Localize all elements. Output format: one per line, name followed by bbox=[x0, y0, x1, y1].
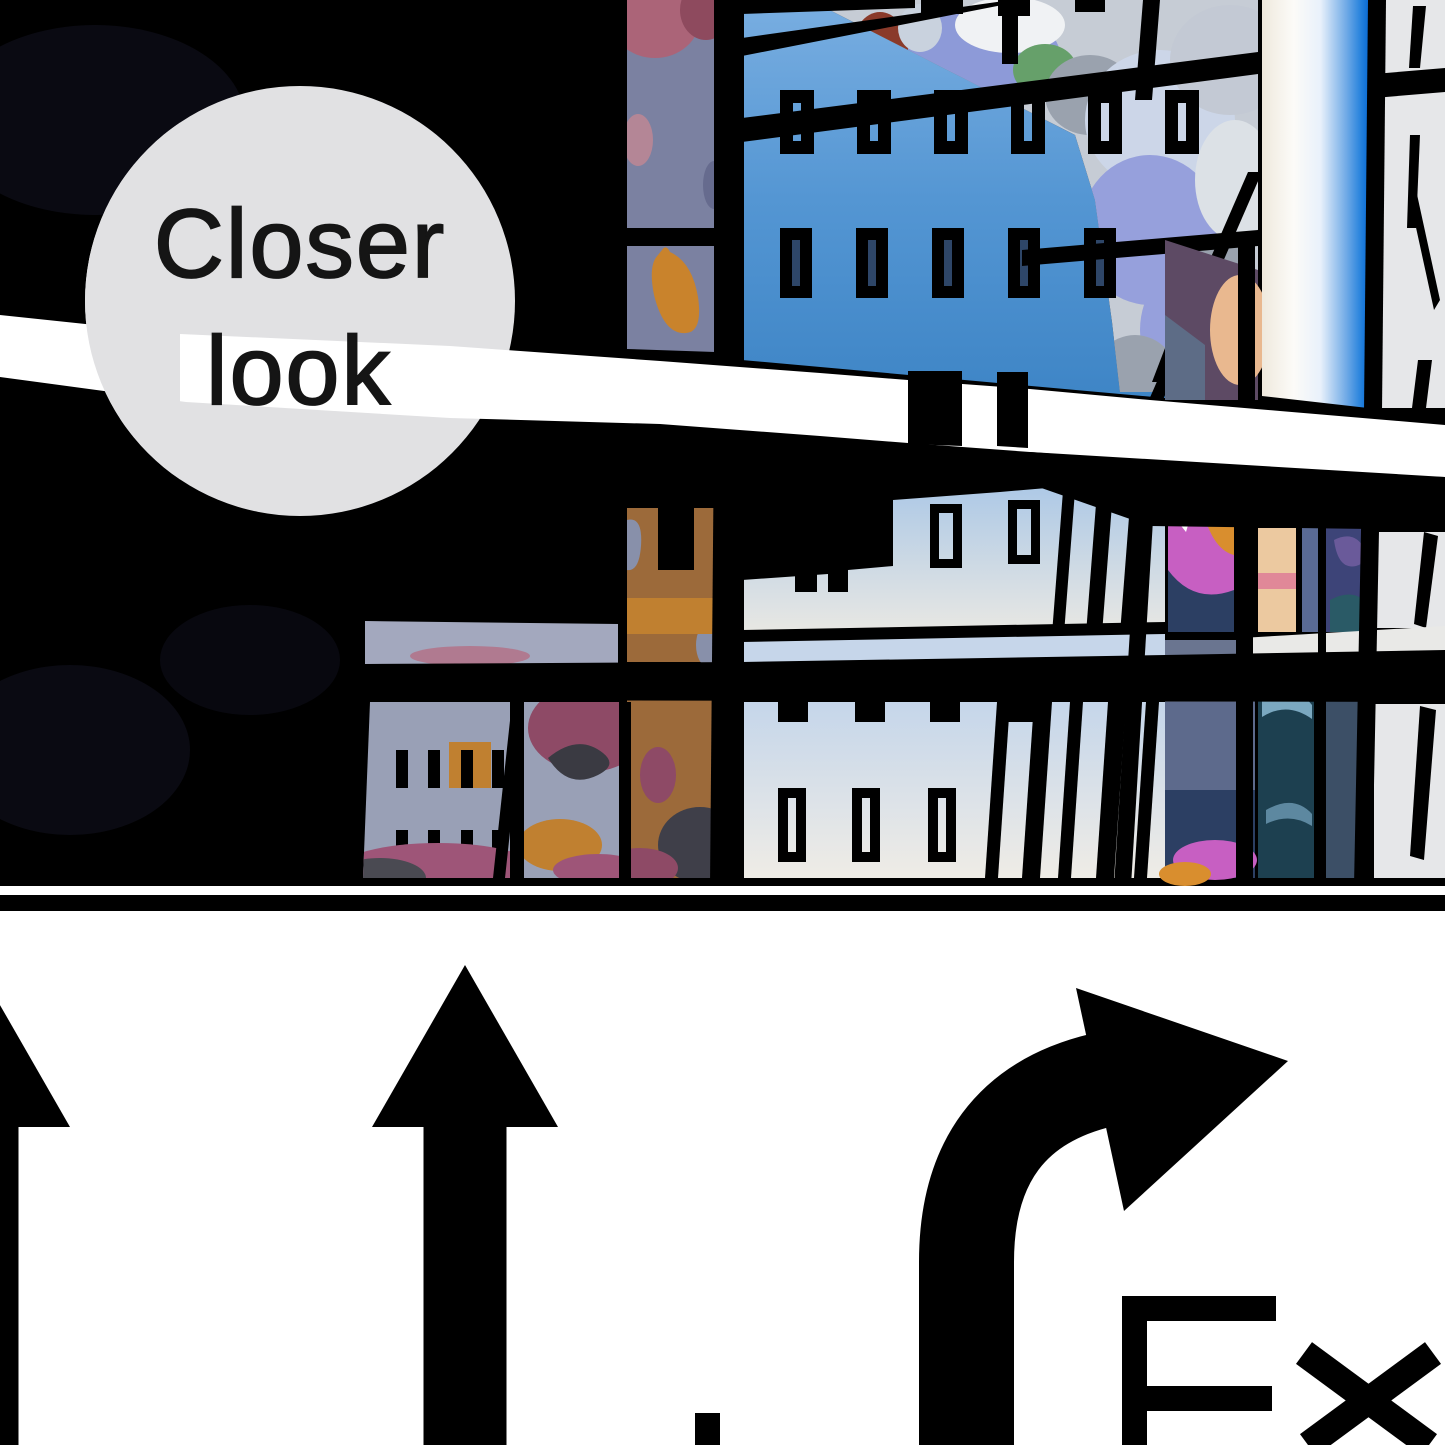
svg-text:look: look bbox=[206, 316, 392, 425]
svg-text:Closer: Closer bbox=[154, 189, 446, 298]
